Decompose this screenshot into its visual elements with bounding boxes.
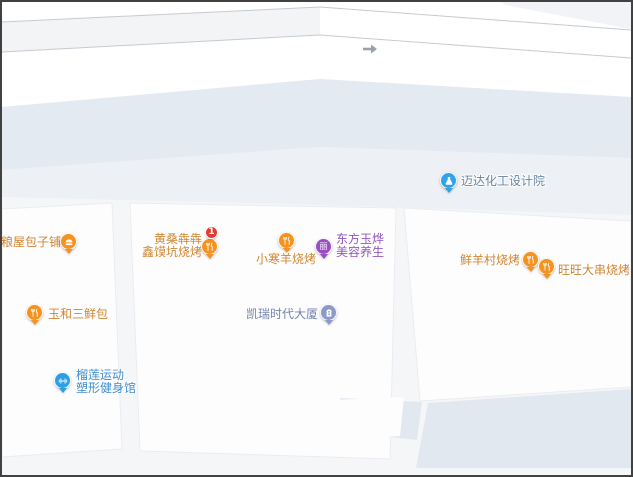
poi-label[interactable]: 榴莲运动 塑形健身馆	[76, 369, 136, 395]
fitness-pin[interactable]	[54, 372, 71, 393]
beauty-pin[interactable]: 丽	[315, 238, 332, 259]
office-building-icon	[324, 308, 334, 318]
restaurant-icon	[30, 308, 40, 318]
flask-icon	[444, 176, 454, 186]
dumbbell-icon	[58, 376, 68, 386]
food-pin[interactable]	[201, 238, 218, 259]
restaurant-icon	[526, 255, 536, 265]
restaurant-icon	[282, 236, 292, 246]
company-pin[interactable]	[440, 172, 457, 193]
poi-label[interactable]: 旺旺大串烧烤	[558, 264, 630, 277]
food-pin[interactable]	[522, 251, 539, 272]
food-pin[interactable]	[538, 258, 555, 279]
food-pin[interactable]	[26, 304, 43, 325]
poi-label[interactable]: 东方玉烨 美容养生	[336, 233, 384, 259]
beauty-icon: 丽	[320, 243, 328, 251]
poi-label[interactable]: 鲜羊村烧烤	[460, 254, 520, 267]
poi-label[interactable]: 古粮屋包子铺	[0, 236, 61, 249]
building-pin[interactable]	[320, 304, 337, 325]
food-pin[interactable]	[278, 232, 295, 253]
map-canvas[interactable]: 迈达化工设计院 古粮屋包子铺 黄桑犇犇 鑫馍坑烧烤 1	[0, 0, 633, 477]
restaurant-icon	[205, 242, 215, 252]
bun-icon	[64, 237, 74, 247]
restaurant-icon	[542, 262, 552, 272]
poi-label[interactable]: 黄桑犇犇 鑫馍坑烧烤	[140, 233, 202, 259]
poi-label[interactable]: 迈达化工设计院	[461, 175, 545, 188]
poi-label[interactable]: 凯瑞时代大厦	[246, 308, 318, 321]
poi-maida-chemical-design-institute[interactable]: 迈达化工设计院	[440, 172, 457, 193]
food-pin[interactable]	[60, 233, 77, 254]
poi-label[interactable]: 小寒羊烧烤	[254, 253, 318, 266]
poi-badge-count: 1	[205, 226, 218, 239]
road-direction-arrow-icon	[362, 43, 379, 55]
poi-label[interactable]: 玉和三鲜包	[48, 308, 108, 321]
